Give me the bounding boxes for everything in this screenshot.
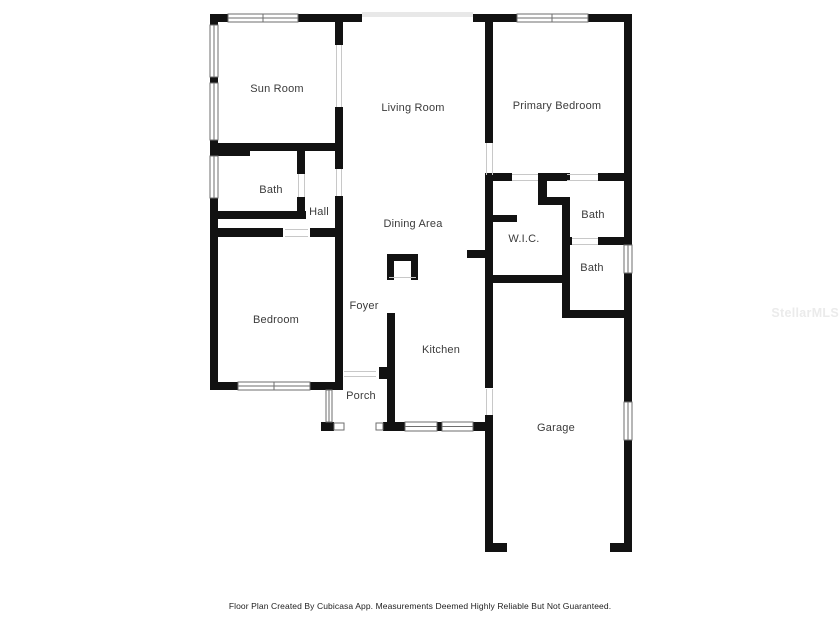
floor-plan-page: Sun Room Living Room Primary Bedroom Bat…: [0, 0, 840, 630]
floor-plan-drawing: [0, 0, 840, 630]
walls: [210, 14, 632, 552]
mls-watermark: StellarMLS: [771, 306, 839, 320]
faint-opening-line: [362, 12, 473, 17]
footer-disclaimer: Floor Plan Created By Cubicasa App. Meas…: [0, 601, 840, 611]
